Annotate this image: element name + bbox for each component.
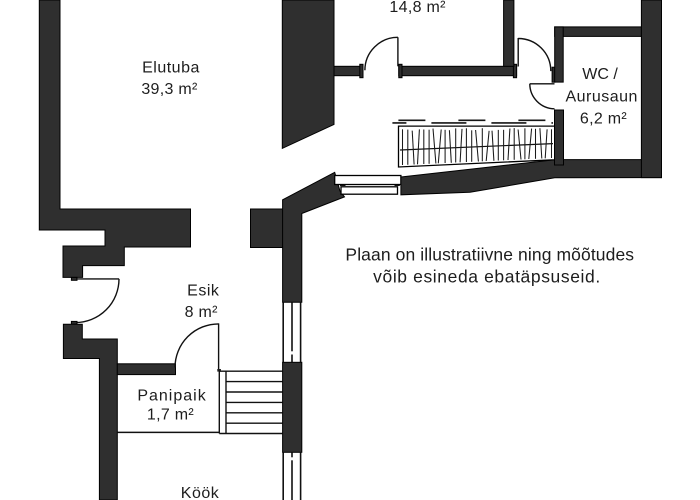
svg-text:Köök: Köök [181,485,220,500]
svg-text:WC /: WC / [582,66,618,83]
svg-text:6,2 m²: 6,2 m² [580,111,628,128]
svg-text:14,8 m²: 14,8 m² [389,0,446,16]
svg-text:39,3 m²: 39,3 m² [141,81,198,98]
svg-text:Panipaik: Panipaik [137,388,206,405]
svg-text:Plaan on illustratiivne ning m: Plaan on illustratiivne ning mõõtudes [345,245,634,265]
svg-text:8 m²: 8 m² [185,304,219,321]
svg-text:võib esineda ebatäpsuseid.: võib esineda ebatäpsuseid. [373,267,601,287]
svg-text:Esik: Esik [187,283,220,300]
svg-text:Aurusaun: Aurusaun [565,89,638,106]
svg-text:1,7 m²: 1,7 m² [147,407,195,424]
svg-text:Elutuba: Elutuba [142,60,200,77]
